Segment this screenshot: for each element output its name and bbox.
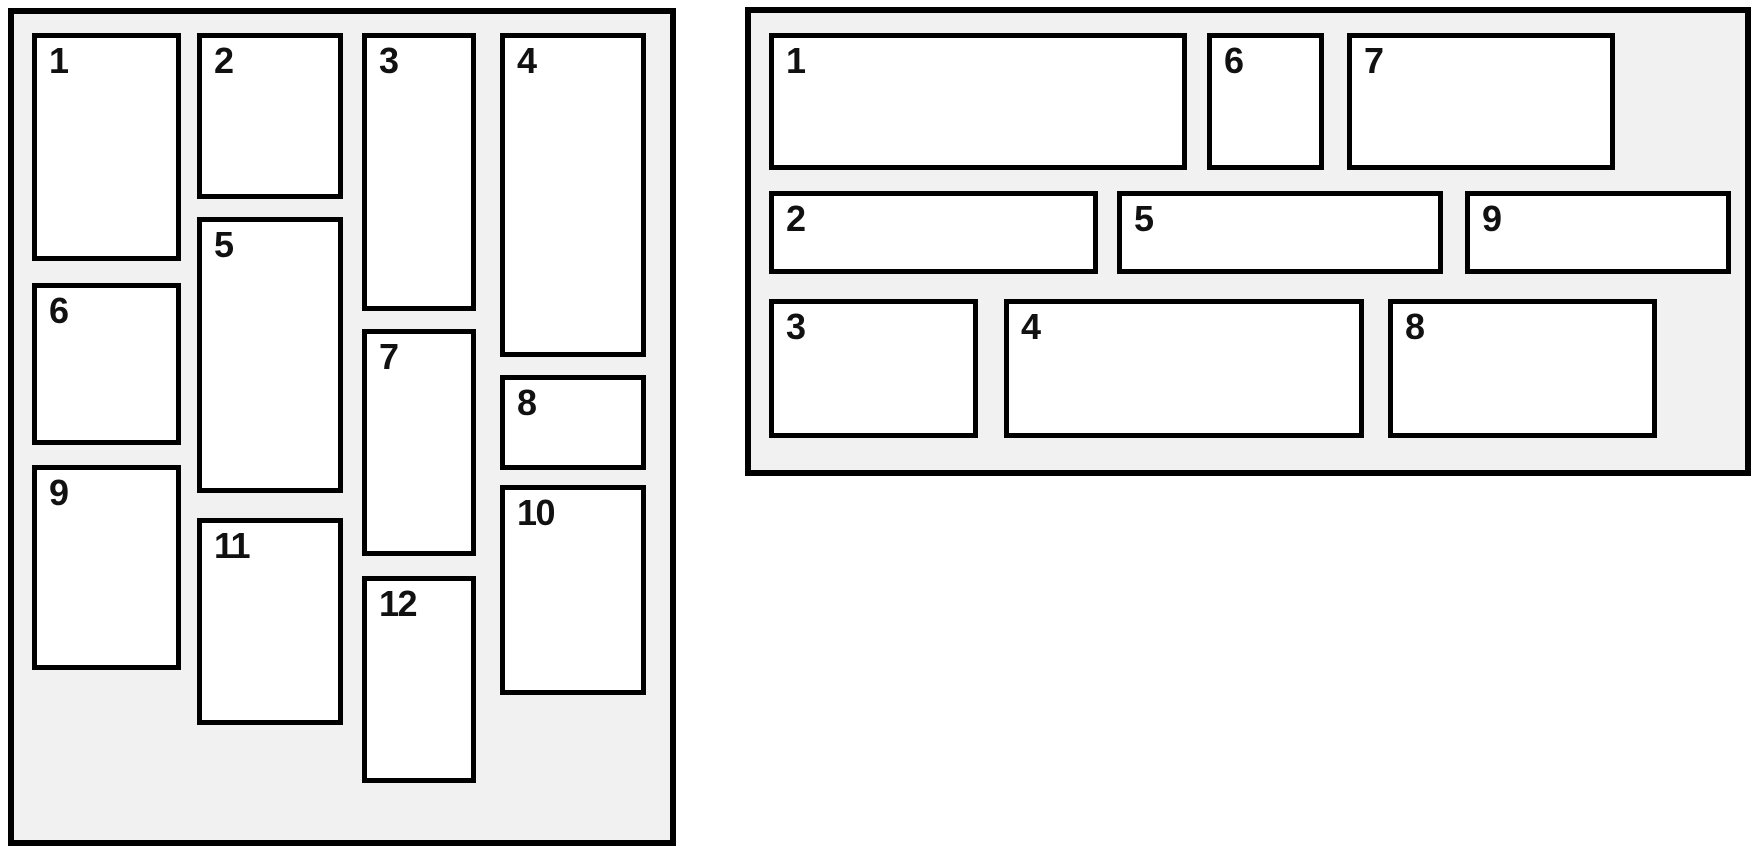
- masonry-box-4: 4: [500, 33, 646, 357]
- masonry-box-5: 5: [197, 217, 343, 493]
- box-number: 5: [1122, 196, 1438, 237]
- row-box-4: 4: [1004, 299, 1364, 438]
- masonry-box-11: 11: [197, 518, 343, 725]
- box-number: 12: [367, 581, 471, 622]
- box-number: 2: [774, 196, 1093, 237]
- box-number: 9: [1470, 196, 1726, 237]
- row-box-5: 5: [1117, 191, 1443, 274]
- masonry-box-9: 9: [32, 465, 181, 670]
- row-box-3: 3: [769, 299, 978, 438]
- box-number: 10: [505, 490, 641, 531]
- box-number: 1: [774, 38, 1182, 79]
- box-number: 1: [37, 38, 176, 79]
- box-number: 11: [202, 523, 338, 564]
- box-number: 2: [202, 38, 338, 79]
- masonry-box-7: 7: [362, 329, 476, 556]
- row-box-6: 6: [1207, 33, 1324, 170]
- masonry-box-2: 2: [197, 33, 343, 199]
- masonry-box-6: 6: [32, 283, 181, 445]
- box-number: 3: [367, 38, 471, 79]
- box-number: 6: [37, 288, 176, 329]
- row-box-1: 1: [769, 33, 1187, 170]
- masonry-box-12: 12: [362, 576, 476, 783]
- masonry-layout-panel: 1 2 3 4 5 6 7 8 9 10 11 12: [8, 8, 676, 846]
- masonry-box-10: 10: [500, 485, 646, 695]
- box-number: 8: [505, 380, 641, 421]
- masonry-box-1: 1: [32, 33, 181, 261]
- box-number: 5: [202, 222, 338, 263]
- box-number: 4: [505, 38, 641, 79]
- masonry-box-3: 3: [362, 33, 476, 311]
- row-box-2: 2: [769, 191, 1098, 274]
- box-number: 8: [1393, 304, 1652, 345]
- row-box-9: 9: [1465, 191, 1731, 274]
- row-box-8: 8: [1388, 299, 1657, 438]
- masonry-box-8: 8: [500, 375, 646, 470]
- box-number: 3: [774, 304, 973, 345]
- box-number: 6: [1212, 38, 1319, 79]
- row-layout-panel: 1 2 3 4 5 6 7 8 9: [745, 7, 1751, 476]
- box-number: 7: [367, 334, 471, 375]
- box-number: 9: [37, 470, 176, 511]
- layout-comparison-diagram: 1 2 3 4 5 6 7 8 9 10 11 12 1 2 3 4 5 6 7…: [0, 0, 1755, 852]
- box-number: 7: [1352, 38, 1610, 79]
- box-number: 4: [1009, 304, 1359, 345]
- row-box-7: 7: [1347, 33, 1615, 170]
